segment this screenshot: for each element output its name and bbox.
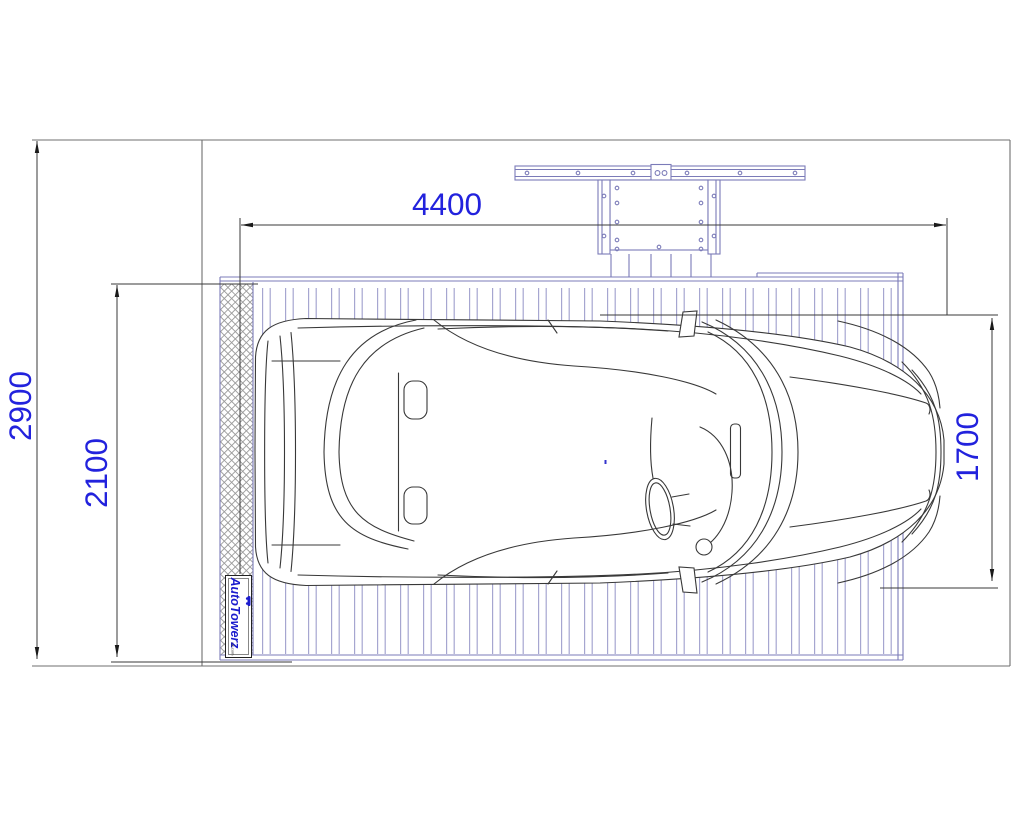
gear-knob <box>696 539 712 555</box>
carriage-right-plate <box>708 180 720 254</box>
arrowhead-down <box>35 647 39 659</box>
arrowhead-left <box>241 223 253 227</box>
dimension-label-overall-depth: 2900 <box>2 371 38 441</box>
logo-brand-text: AutoTowerz <box>228 576 242 649</box>
dimension-label-platform-width: 2100 <box>78 438 114 508</box>
arrowhead-down <box>990 569 994 581</box>
rear-headrest-left <box>404 381 427 419</box>
cad-sheet: AutoTowerz uk.com <box>0 0 1024 819</box>
arrowhead-up <box>115 285 119 297</box>
arrowhead-down <box>115 645 119 657</box>
lift-mechanism <box>515 165 805 278</box>
roof-center-mark <box>605 460 607 464</box>
arrowhead-up <box>990 318 994 330</box>
rear-headrest-right <box>404 487 427 524</box>
arrowhead-right <box>934 223 946 227</box>
lift-carriage-box <box>610 180 708 250</box>
dimension-label-total-length: 4400 <box>412 186 482 222</box>
car-plan-view <box>255 311 944 593</box>
carriage-left-plate <box>598 180 610 254</box>
dimension-label-car-width: 1700 <box>949 412 985 482</box>
car-body-outline <box>255 319 944 586</box>
rearview-mirror <box>731 424 741 478</box>
cad-drawing: AutoTowerz uk.com <box>0 0 1024 819</box>
arrowhead-up <box>35 141 39 153</box>
rail-center-plate <box>651 165 671 182</box>
logo-small-print: uk.com <box>231 643 236 657</box>
logo-plate: AutoTowerz uk.com <box>226 576 252 658</box>
